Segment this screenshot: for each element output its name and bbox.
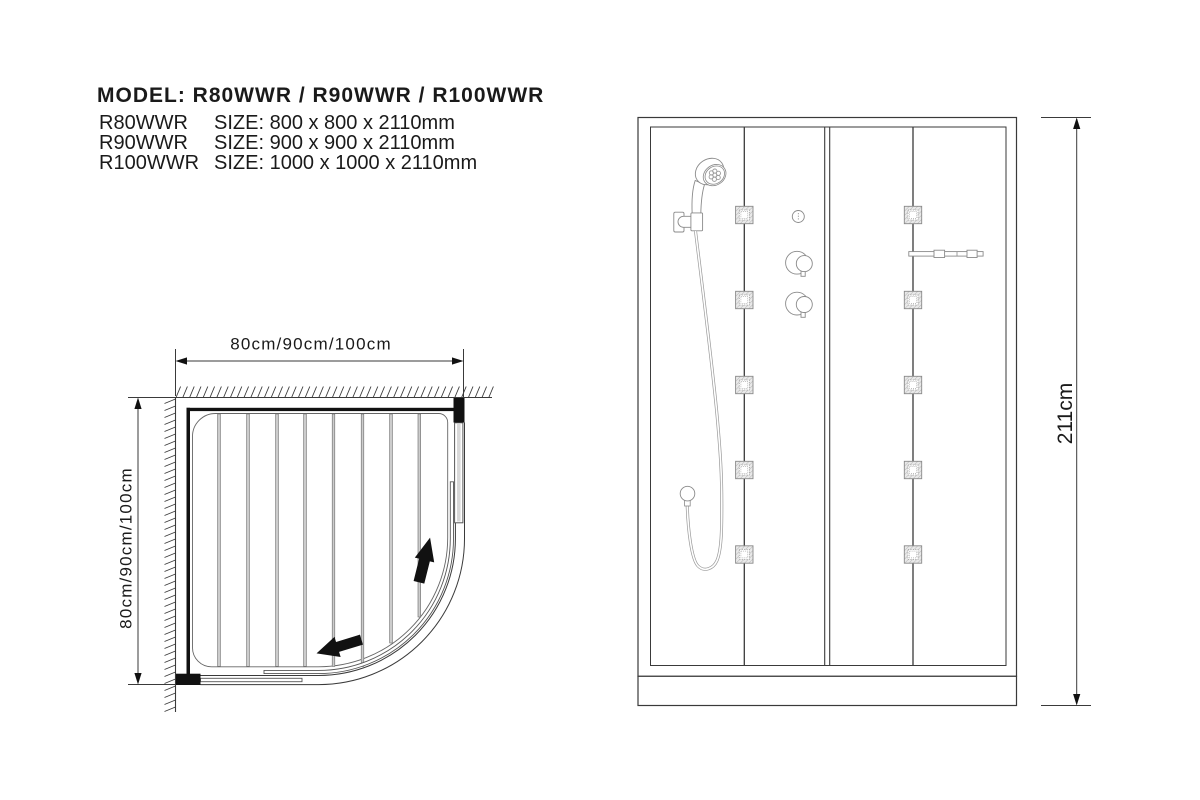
svg-text:211cm: 211cm [1054,383,1077,444]
svg-text:80cm/90cm/100cm: 80cm/90cm/100cm [117,467,136,629]
svg-text:80cm/90cm/100cm: 80cm/90cm/100cm [230,335,392,354]
